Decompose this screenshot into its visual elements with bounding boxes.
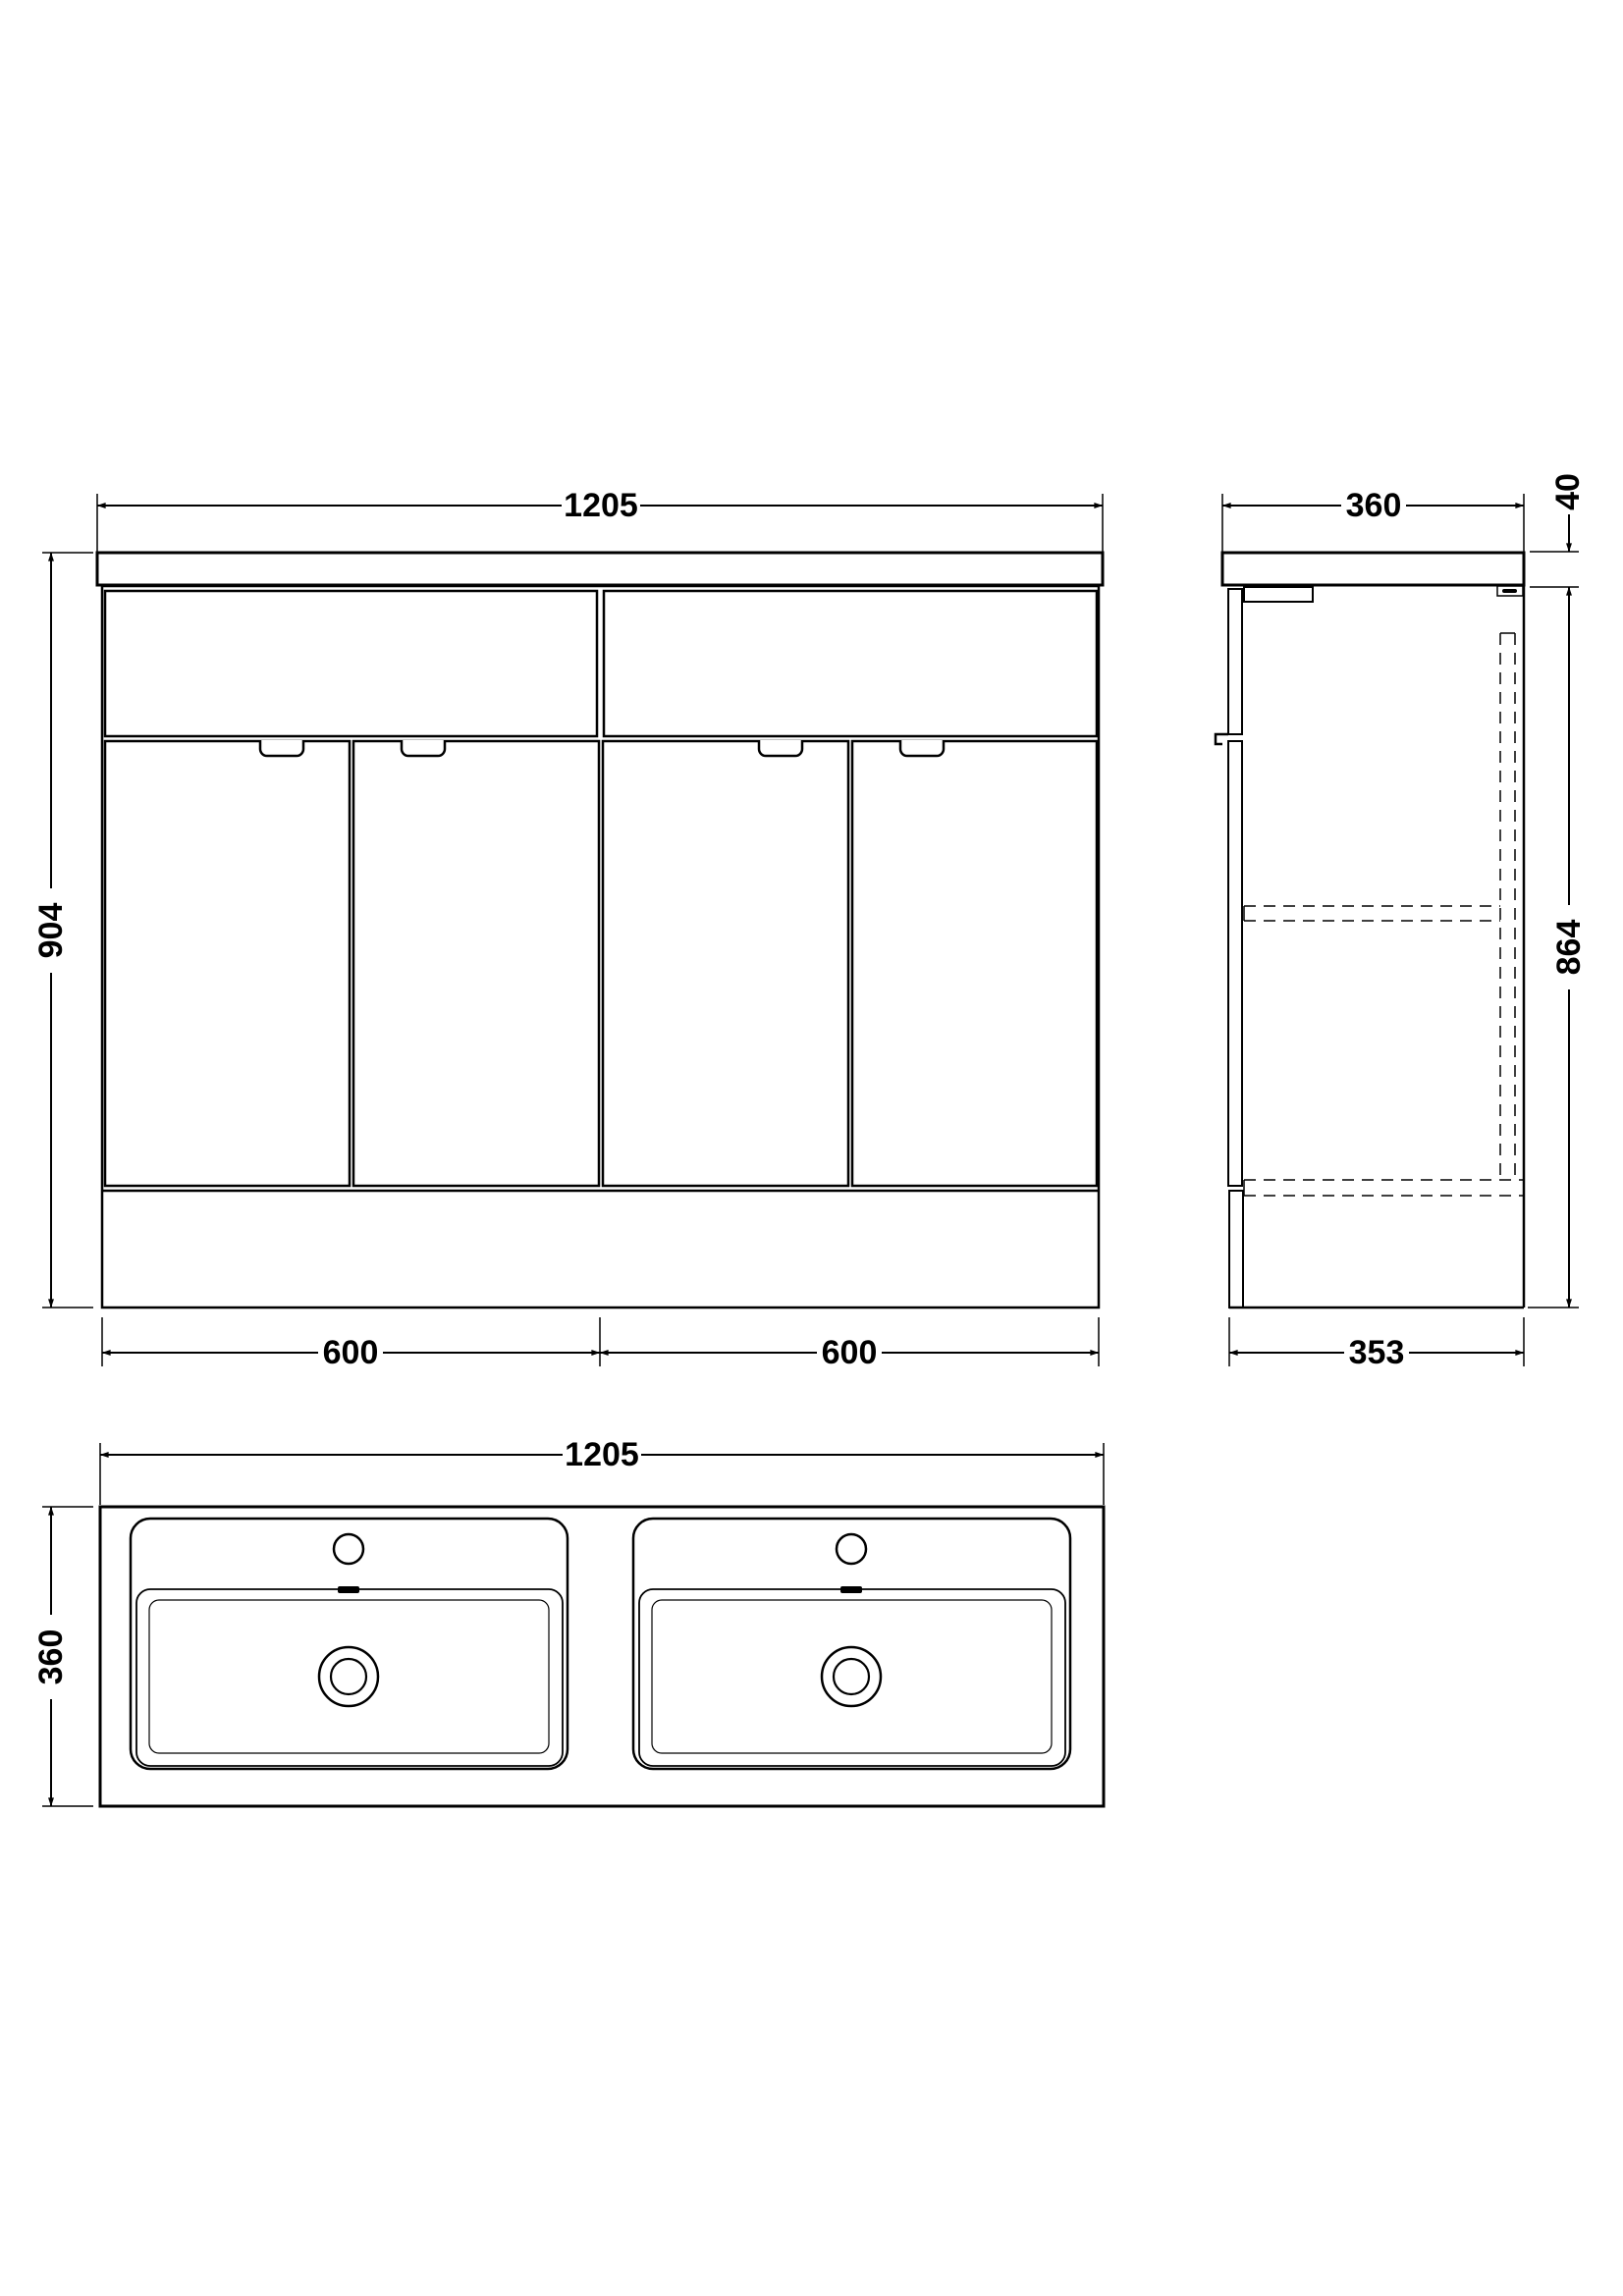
dimension-label: 600 (323, 1334, 379, 1371)
front-handle-door-4 (900, 740, 944, 756)
plan-basin-outline (100, 1507, 1104, 1806)
front-handle-door-2 (402, 740, 445, 756)
basin-bowl-outer (639, 1589, 1065, 1766)
dimension-label: 1205 (565, 1436, 639, 1473)
basin-bowl-inner (652, 1600, 1052, 1753)
dimension-label: 600 (822, 1334, 878, 1371)
side-handle-profile (1216, 734, 1228, 744)
front-door-3 (603, 741, 848, 1186)
front-handle-door-1 (260, 740, 303, 756)
side-door-front (1228, 741, 1242, 1186)
dim-front-modules: 600 600 (102, 1317, 1099, 1371)
side-back-panel-dashed (1500, 633, 1515, 1180)
dimension-label: 864 (1550, 920, 1588, 976)
front-handle-door-3 (759, 740, 802, 756)
tap-hole (334, 1534, 363, 1564)
side-fixing-clip-pad (1502, 589, 1517, 593)
waste-outer (319, 1647, 378, 1706)
dim-cabinet-depth: 353 (1229, 1317, 1524, 1371)
waste-outer (822, 1647, 881, 1706)
dim-counter-thickness: 40 (1530, 473, 1587, 587)
front-drawer-left (105, 591, 597, 736)
side-counter-top (1222, 553, 1524, 585)
front-door-1 (105, 741, 350, 1186)
dimension-label: 353 (1349, 1334, 1405, 1371)
overflow-slot (840, 1586, 862, 1593)
side-section-view (1216, 553, 1524, 1308)
front-cabinet-body (102, 586, 1099, 1308)
basin-outer-rim (633, 1519, 1070, 1769)
front-door-2 (353, 741, 599, 1186)
waste-inner (331, 1659, 366, 1694)
drawing-sheet: 1205 904 600 600 (0, 0, 1623, 2296)
waste-inner (834, 1659, 869, 1694)
dimension-label: 360 (1346, 487, 1402, 524)
side-top-rail (1244, 587, 1313, 602)
dimension-label: 360 (32, 1629, 70, 1685)
front-door-4 (852, 741, 1097, 1186)
dim-plan-depth: 360 (32, 1507, 93, 1806)
technical-drawing: 1205 904 600 600 (0, 0, 1623, 2296)
dim-plan-width: 1205 (100, 1436, 1104, 1505)
dim-cabinet-height: 864 (1528, 587, 1588, 1308)
dimension-label: 904 (32, 903, 70, 959)
front-counter-top (97, 553, 1103, 585)
dimension-label: 1205 (564, 487, 638, 524)
basin-bowl-inner (149, 1600, 549, 1753)
side-plinth-front (1229, 1191, 1243, 1308)
dim-side-depth: 360 (1222, 487, 1524, 552)
overflow-slot (338, 1586, 359, 1593)
dimension-label: 40 (1549, 473, 1587, 510)
plan-basin-right (633, 1519, 1070, 1769)
front-drawer-right (604, 591, 1097, 736)
side-shelf-dashed (1244, 906, 1500, 921)
front-elevation-view (97, 553, 1103, 1308)
basin-bowl-outer (136, 1589, 563, 1766)
dim-front-width: 1205 (97, 487, 1103, 552)
basin-outer-rim (131, 1519, 568, 1769)
tap-hole (837, 1534, 866, 1564)
side-drawer-front (1228, 589, 1242, 734)
plan-basin-left (131, 1519, 568, 1769)
plan-view (100, 1507, 1104, 1806)
side-bottom-panel-dashed (1244, 1180, 1524, 1196)
dim-front-height: 904 (32, 553, 93, 1308)
